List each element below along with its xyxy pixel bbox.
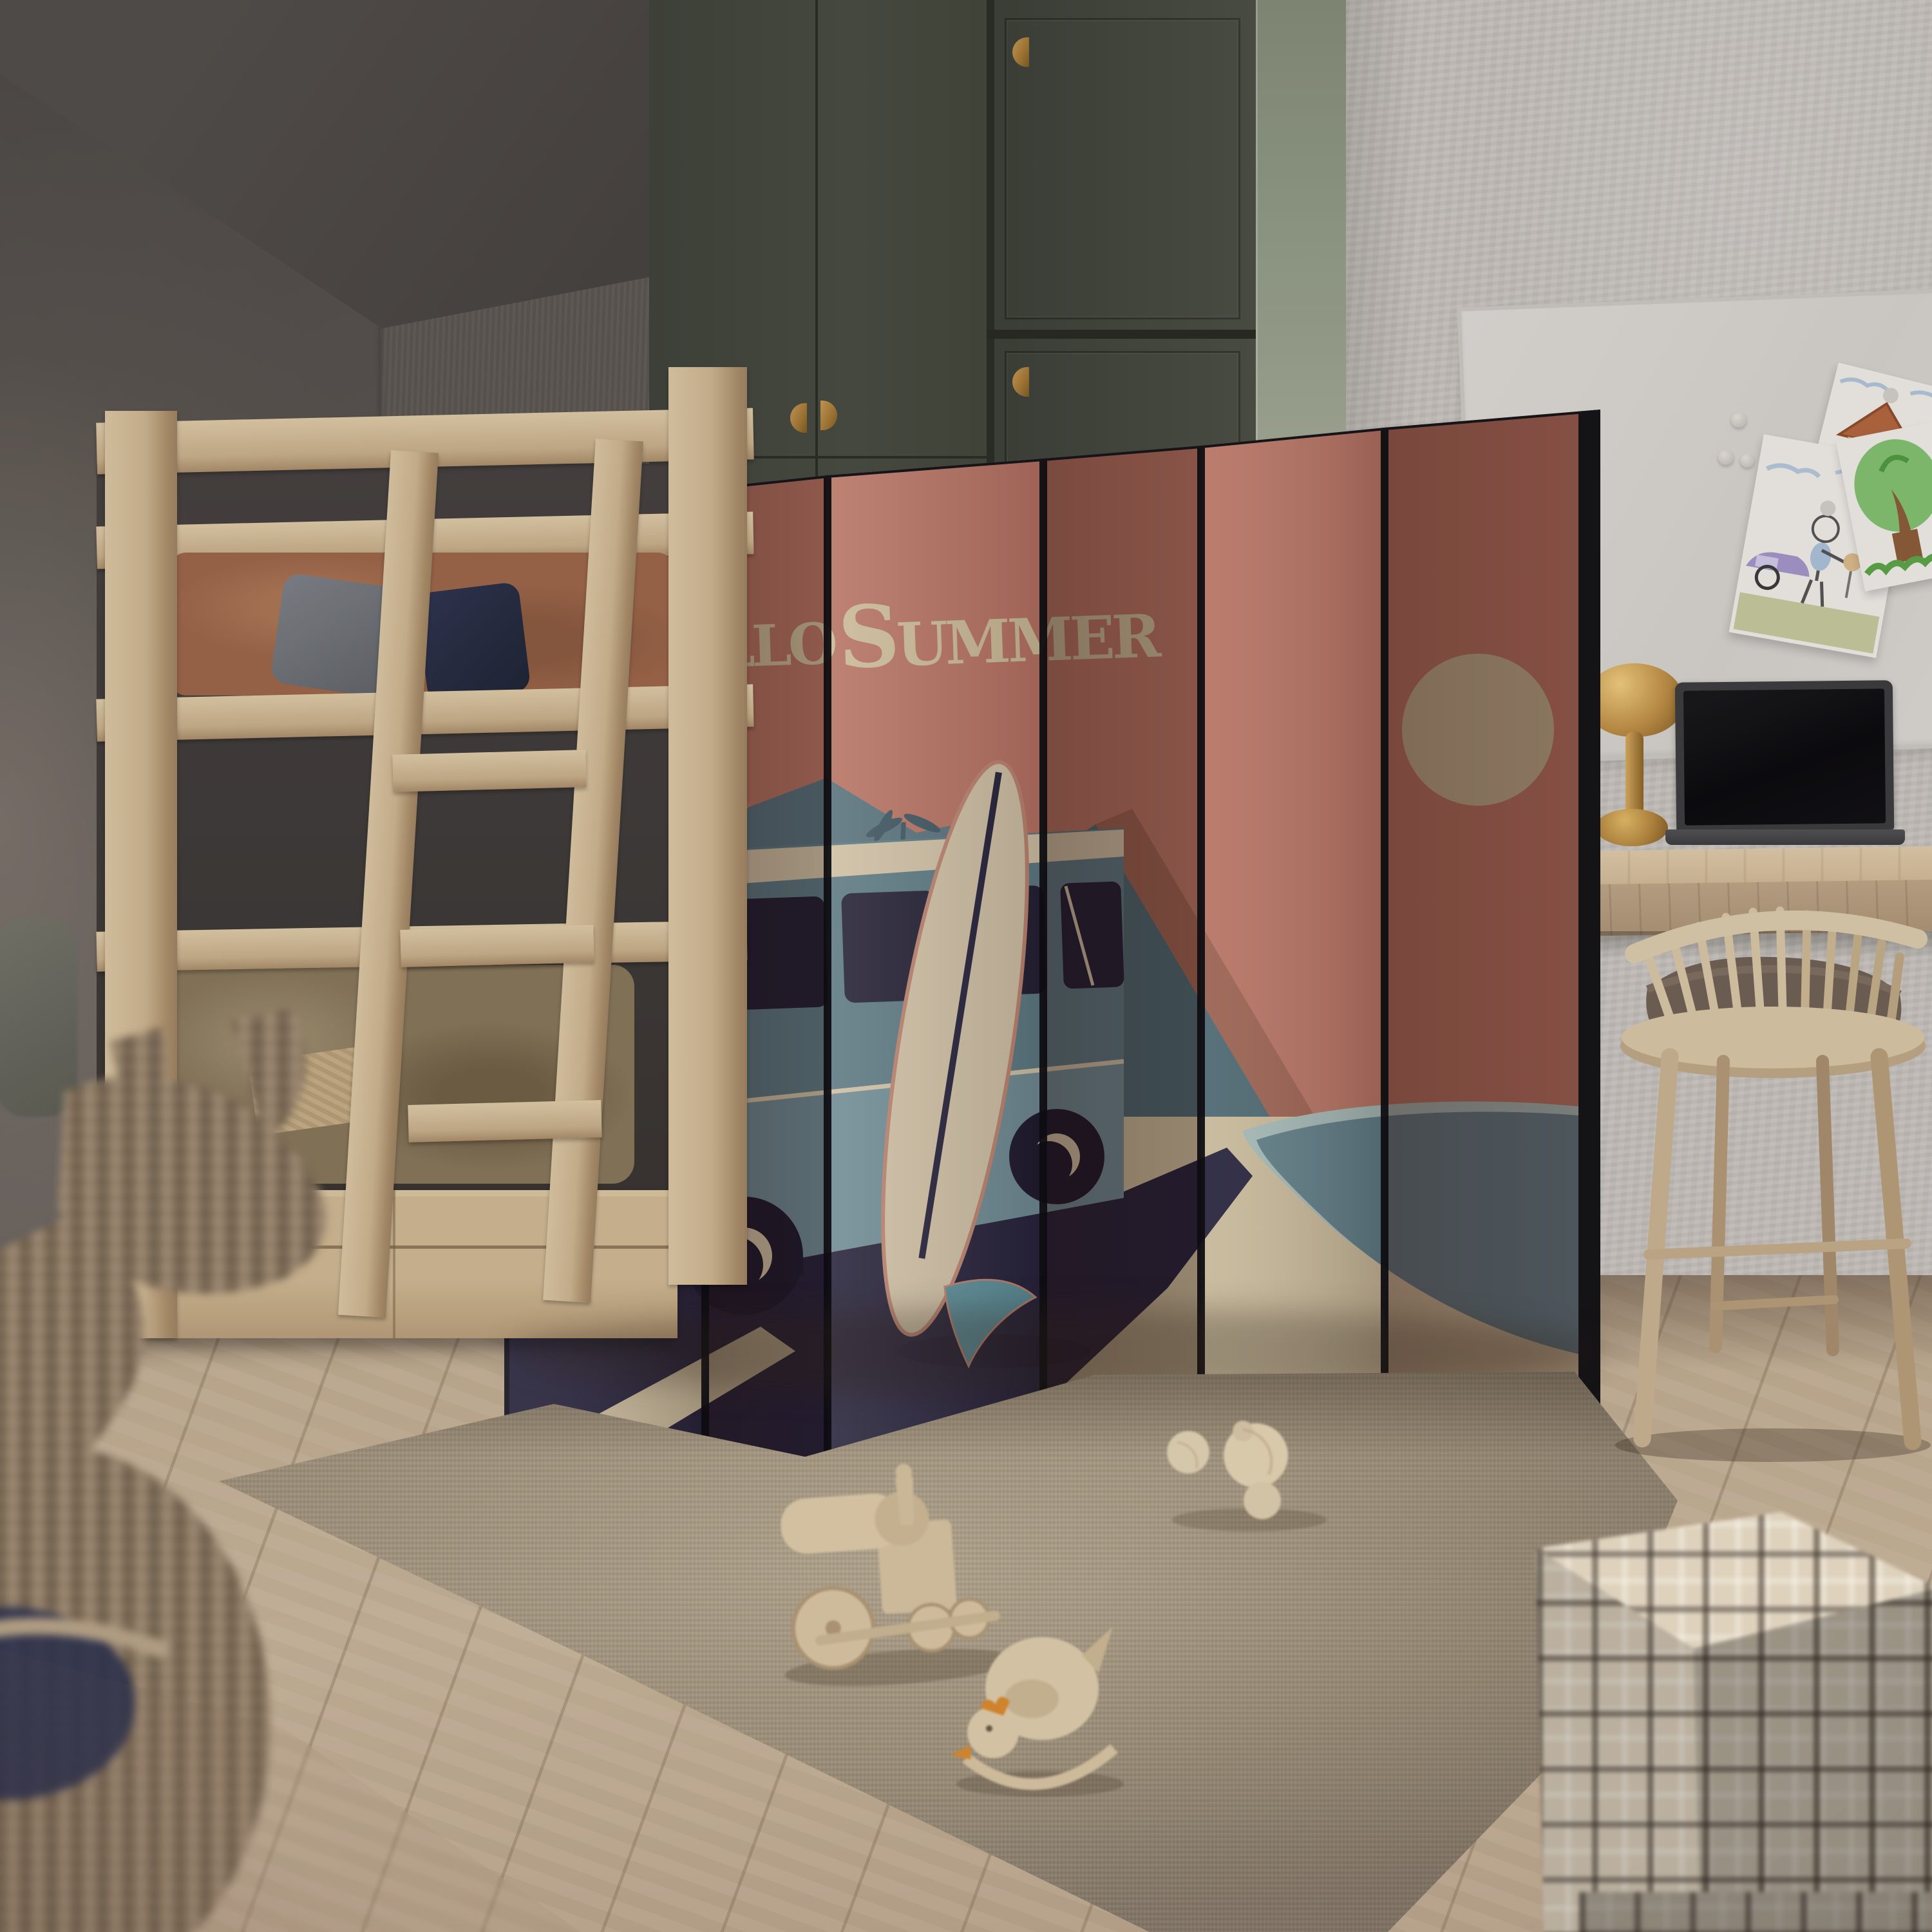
second-cube — [1579, 1892, 1932, 1932]
magnet — [1740, 453, 1754, 468]
kids-bedroom-scene: HELLO SUMMER — [0, 0, 1932, 1932]
laptop-screen — [1683, 688, 1886, 825]
laptop-keyboard-base — [1665, 829, 1905, 845]
desk-lamp-arm — [1625, 732, 1643, 817]
magnet — [1731, 412, 1747, 428]
ladder-rung — [408, 1100, 601, 1142]
bed-post-right — [668, 367, 747, 1285]
spindle-chair — [1609, 893, 1932, 1466]
toy-wooden-balls — [1167, 1421, 1327, 1531]
divider-edge-right — [1578, 404, 1602, 1499]
ladder-rung — [400, 925, 594, 967]
toy-train — [771, 1457, 1018, 1692]
ladder-rung — [392, 750, 586, 792]
laptop — [1675, 680, 1894, 832]
navy-pillow — [415, 582, 531, 703]
wooden-toys — [734, 1397, 1365, 1848]
magnet — [1718, 450, 1734, 465]
chair-legs — [1642, 1057, 1913, 1441]
